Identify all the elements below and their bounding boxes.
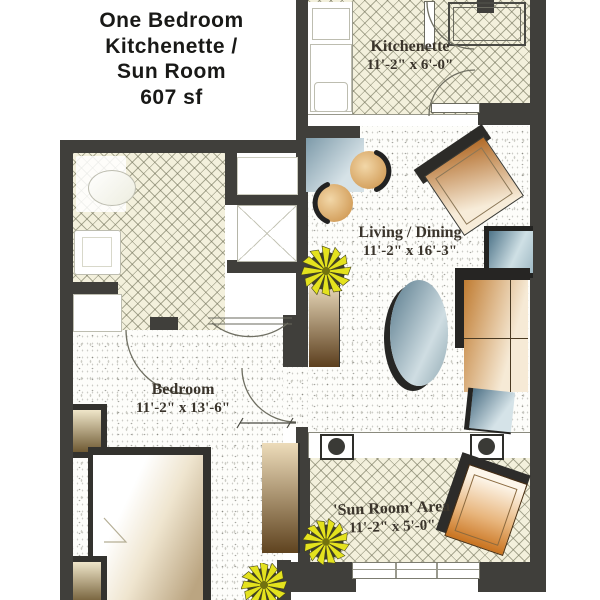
dining-chair: [315, 184, 353, 222]
plant: [302, 518, 350, 566]
shower: [237, 205, 297, 262]
title-line: 607 sf: [64, 85, 279, 111]
wall-sunroom-corner-right: [478, 562, 530, 592]
sofa-body: [464, 280, 528, 392]
title-line: One Bedroom: [64, 8, 279, 34]
sunroom-chair-cushion-line: [454, 474, 517, 546]
toilet: [74, 230, 121, 275]
sofa-back-side: [455, 268, 464, 348]
nightstand: [73, 556, 107, 600]
sofa-back-top: [455, 268, 530, 280]
sunroom-window: [352, 562, 480, 579]
plant-starburst: [301, 246, 351, 296]
wall-kitchen-door-stub: [478, 103, 530, 125]
end-table: [464, 388, 515, 435]
sofa-cushion-line-h: [464, 338, 528, 339]
vent-circle: [328, 438, 345, 455]
bedroom-passage-floor: [283, 367, 308, 427]
heater-vent: [320, 434, 354, 460]
kitchen-stove: [314, 82, 348, 112]
wall-sunroom-corner-left: [288, 562, 356, 592]
bath-vanity: [73, 294, 122, 332]
wall-bath-lower-left: [60, 282, 118, 294]
kitchen-sink: [312, 8, 350, 40]
plant: [241, 563, 287, 600]
toilet-tank-line: [82, 237, 112, 267]
entry-door-leaf: [424, 1, 435, 49]
linen-closet: [237, 157, 298, 195]
window-mullion: [436, 563, 438, 578]
wall-right-exterior: [530, 0, 546, 592]
window-mullion: [395, 563, 397, 578]
title-line: Sun Room: [64, 59, 279, 85]
title-line: Kitchenette /: [64, 34, 279, 60]
plant-starburst: [241, 563, 287, 600]
entry-closet-inner-line: [453, 7, 521, 41]
entry-closet: [448, 2, 526, 46]
plant-starburst: [303, 519, 349, 565]
dresser: [262, 443, 300, 553]
coffee-table-oval: [390, 280, 448, 386]
vent-circle: [478, 438, 495, 455]
window-center-line: [353, 569, 479, 570]
wall-bathroom-top: [60, 140, 308, 153]
plant: [300, 245, 352, 297]
dining-chair: [350, 151, 388, 189]
plan-title: One Bedroom Kitchenette / Sun Room 607 s…: [64, 8, 279, 110]
kitchen-door-leaf: [431, 103, 480, 113]
sofa-cushion-line-v: [510, 280, 511, 392]
wall-bath-door-stub: [150, 317, 178, 330]
wall-kitchenette-left: [296, 0, 308, 140]
wall-wardrobe-pier: [283, 315, 308, 367]
bath-sink: [88, 170, 136, 206]
floor-plan: One Bedroom Kitchenette / Sun Room 607 s…: [0, 0, 600, 600]
wall-left-exterior: [60, 140, 73, 600]
